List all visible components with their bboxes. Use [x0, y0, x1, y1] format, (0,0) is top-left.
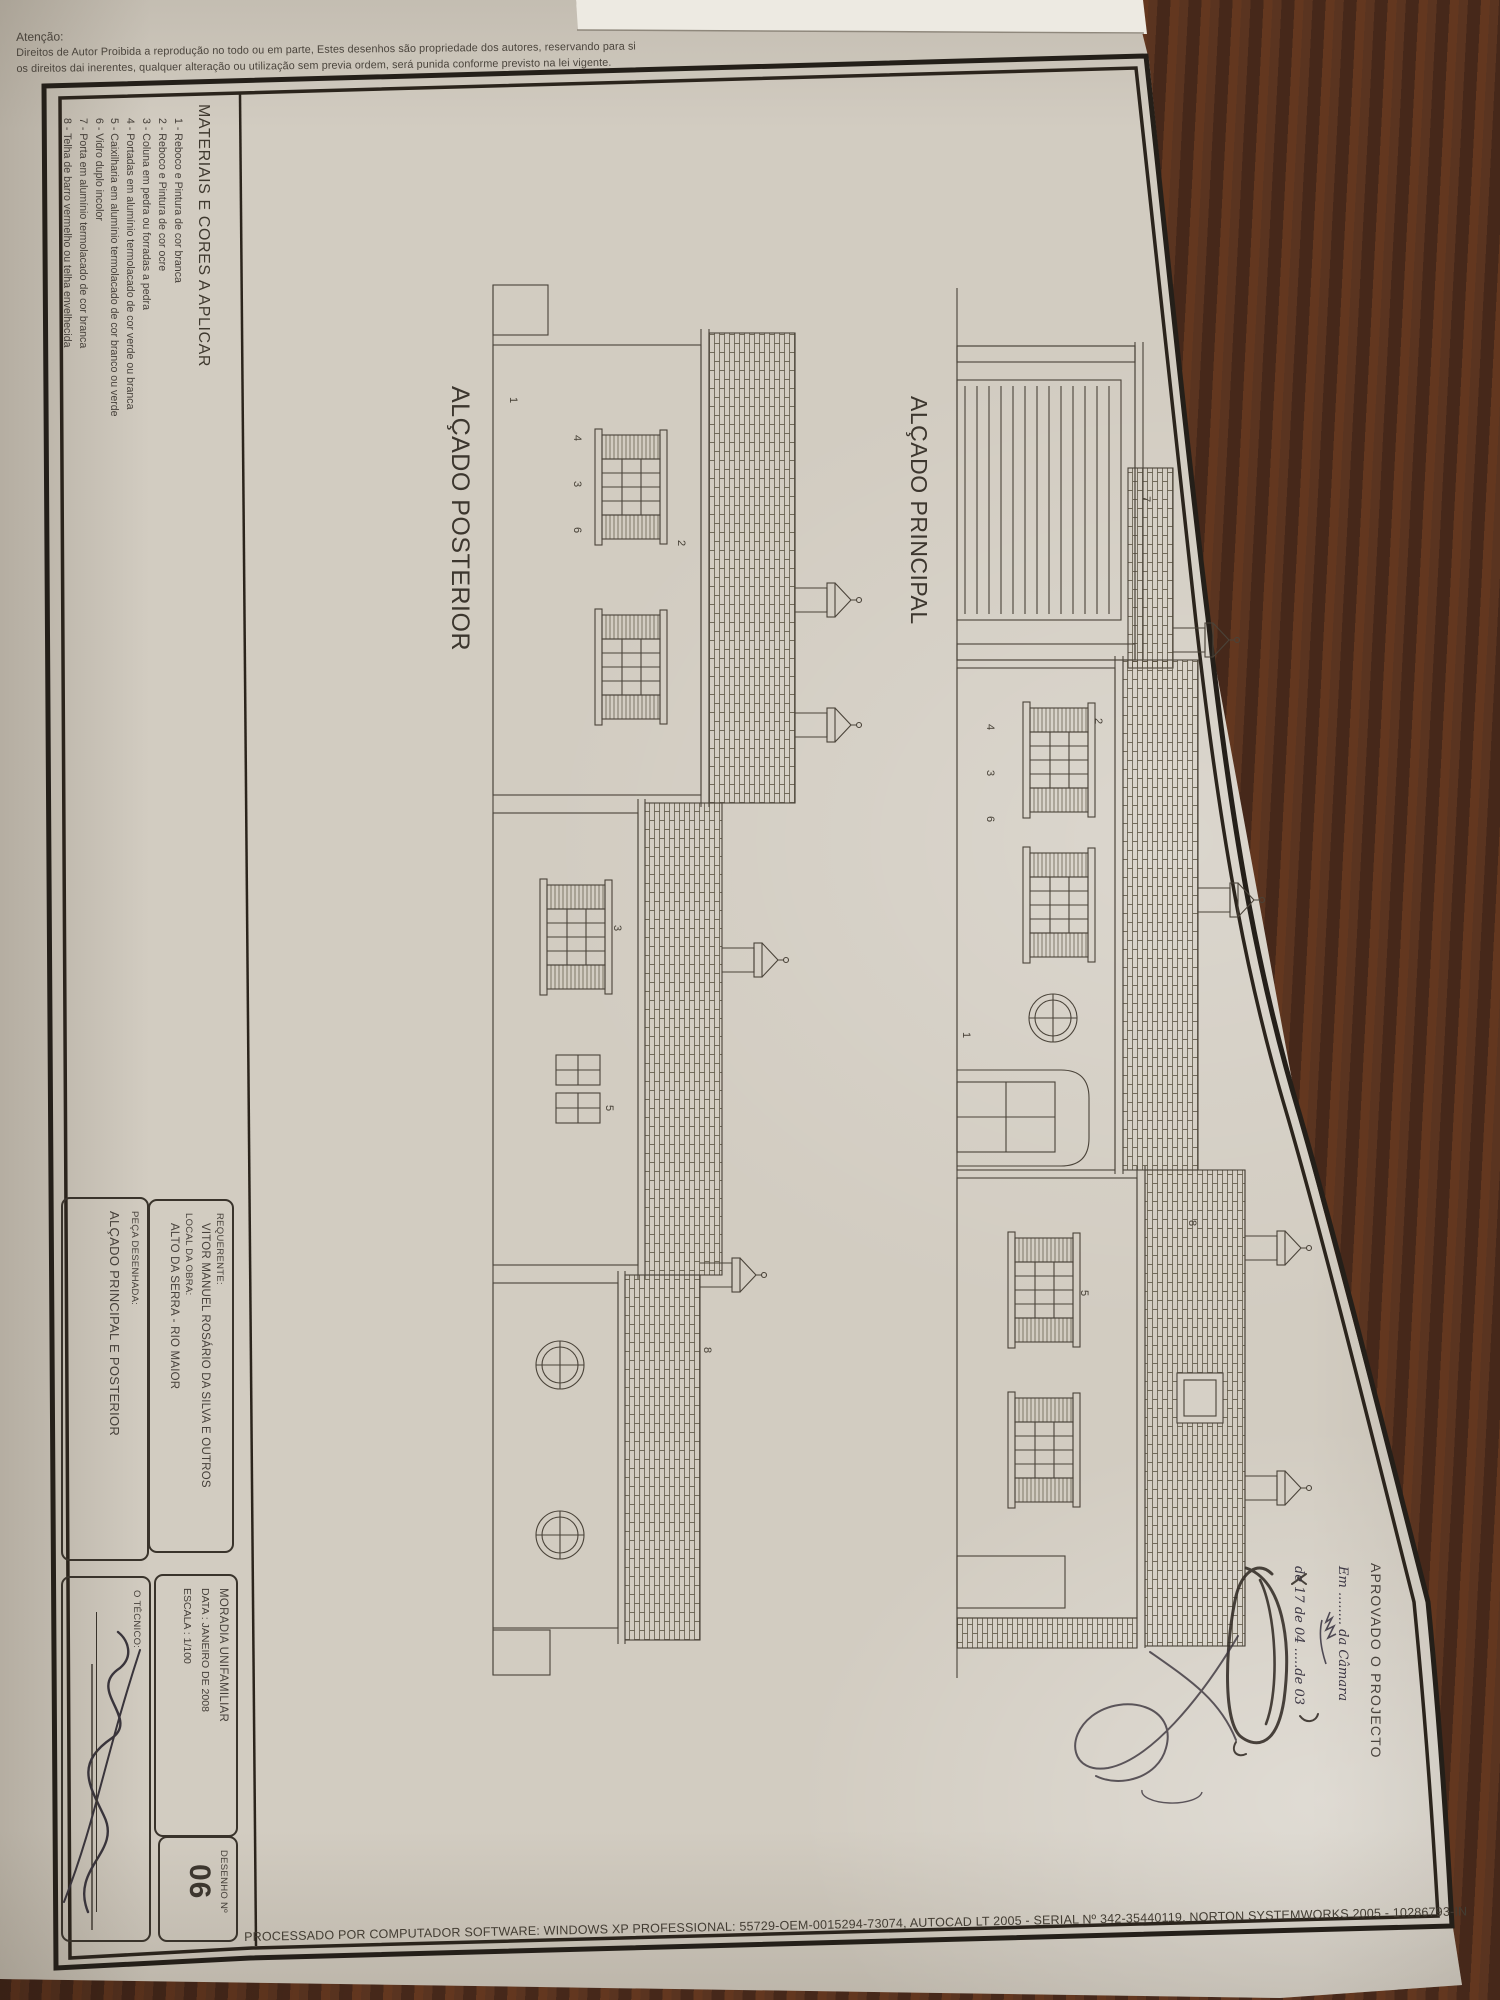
window: [1008, 1232, 1080, 1348]
posterior-elevation-title: ALÇADO POSTERIOR: [434, 386, 474, 658]
legend-item: 6 - Vidro duplo incolor: [90, 118, 106, 624]
side-door: [957, 1556, 1065, 1608]
requerente-label: REQUERENTE:: [214, 1213, 225, 1539]
legend-item: 7 - Porta em alumínio termolacado de cor…: [74, 118, 90, 624]
border-frame: [44, 30, 1452, 1968]
window: [595, 429, 667, 545]
legend-item: 4 - Portadas em alumínio termolacado de …: [121, 118, 137, 624]
garden-wall: [493, 285, 548, 335]
drawing-number: 06: [182, 1864, 216, 1928]
facade: [493, 1283, 618, 1628]
material-ref-label: 4: [984, 724, 996, 730]
materials-legend-title: MATERIAIS E CORES A APLICAR: [194, 104, 212, 624]
paper-edge-line: [577, 30, 1144, 33]
desenho-label: DESENHO Nº: [218, 1850, 229, 1928]
chimney: [1245, 1471, 1312, 1505]
material-ref-label: 2: [1092, 718, 1104, 724]
material-ref-label: 8: [701, 1347, 713, 1353]
material-ref-label: 4: [571, 435, 583, 441]
peca-value: ALÇADO PRINCIPAL E POSTERIOR: [107, 1211, 122, 1547]
titleblock-desenho-box: DESENHO Nº 06: [158, 1836, 238, 1942]
tecnico-label: O TÉCNICO:: [131, 1590, 142, 1928]
titleblock-tecnico-box: O TÉCNICO:: [61, 1576, 151, 1942]
facade: [957, 346, 1135, 660]
roof-hatch: [625, 1275, 700, 1640]
titleblock-requerente-box: REQUERENTE: VITOR MANUEL ROSÁRIO DA SILV…: [148, 1199, 234, 1553]
local-obra-value: ALTO DA SERRA - RIO MAIOR: [168, 1223, 180, 1539]
garage-door-slats: [965, 386, 1109, 614]
roof-hatch: [1123, 660, 1198, 1170]
peca-label: PEÇA DESENHADA:: [129, 1211, 140, 1547]
material-ref-label: 8: [1186, 1220, 1198, 1226]
brick-pier: [957, 1618, 1137, 1648]
facade: [493, 345, 701, 795]
photo-of-architectural-sheet: { "copyright_note": { "heading": "Atençã…: [0, 0, 1500, 2000]
round-window: [536, 1511, 584, 1559]
titleblock-peca-box: PEÇA DESENHADA: ALÇADO PRINCIPAL E POSTE…: [61, 1197, 149, 1561]
chimney: [722, 943, 789, 977]
material-ref-label: 7: [1140, 496, 1152, 502]
material-ref-label: 6: [984, 816, 996, 822]
chimney: [795, 708, 862, 742]
chimney: [795, 583, 862, 617]
roof-hatch: [645, 803, 722, 1275]
garage-door: [957, 380, 1121, 620]
round-window: [1029, 994, 1077, 1042]
project-type: MORADIA UNIFAMILIAR: [217, 1588, 229, 1823]
legend-separator-line: [240, 94, 256, 1946]
requerente-value: VITOR MANUEL ROSÁRIO DA SILVA E OUTROS: [199, 1223, 211, 1539]
principal-elevation-drawing: 7 2 4 3 6 1 5 8: [957, 288, 1312, 1678]
chimney: [1198, 883, 1265, 917]
material-ref-label: 3: [611, 925, 623, 931]
material-ref-label: 5: [603, 1105, 615, 1111]
titleblock-project-box: MORADIA UNIFAMILIAR DATA : JANEIRO DE 20…: [154, 1574, 238, 1837]
material-ref-label: 5: [1078, 1290, 1090, 1296]
chimney: [1173, 623, 1240, 657]
material-ref-label: 6: [571, 527, 583, 533]
approval-handwriting-line2: de 17 de 04 .....de 03: [1276, 1566, 1306, 1746]
legend-item: 3 - Coluna em pedra ou forradas a pedra: [137, 118, 153, 624]
approval-stamp-title: APROVADO O PROJECTO: [1354, 1563, 1384, 1755]
window: [1023, 702, 1095, 818]
material-ref-label: 1: [960, 1032, 972, 1038]
legend-item: 2 - Reboco e Pintura de cor ocre: [153, 118, 169, 624]
window: [1023, 847, 1095, 963]
signature-line: [96, 1612, 131, 1912]
posterior-elevation-drawing: 2 4 3 6 1 3 5 8: [493, 285, 862, 1675]
garden-wall: [493, 1630, 550, 1675]
window: [595, 609, 667, 725]
material-ref-label: 1: [507, 397, 519, 403]
round-window: [536, 1341, 584, 1389]
window: [540, 879, 612, 995]
roof-hatch: [709, 333, 795, 803]
chimney: [1245, 1231, 1312, 1265]
material-ref-label: 3: [571, 481, 583, 487]
local-obra-label: LOCAL DA OBRA:: [183, 1213, 194, 1539]
legend-item: 8 - Telha de barro vermelho ou telha env…: [58, 118, 74, 624]
legend-item: 5 - Caixilharia em alumínio termolacado …: [106, 118, 122, 624]
approver-signature-flourish: [1075, 1636, 1238, 1803]
facade: [493, 813, 638, 1265]
window: [1008, 1392, 1080, 1508]
project-date: DATA : JANEIRO DE 2008: [199, 1588, 211, 1823]
material-ref-label: 3: [984, 770, 996, 776]
project-scale: ESCALA : 1/100: [181, 1588, 193, 1823]
material-ref-label: 2: [675, 540, 687, 546]
legend-item: 1 - Reboco e Pintura de cor branca: [169, 118, 185, 624]
materials-legend: MATERIAIS E CORES A APLICAR 1 - Reboco e…: [47, 104, 212, 624]
principal-elevation-title: ALÇADO PRINCIPAL: [896, 396, 932, 646]
approval-handwriting-line1: Em ........ da Câmara: [1320, 1566, 1350, 1726]
